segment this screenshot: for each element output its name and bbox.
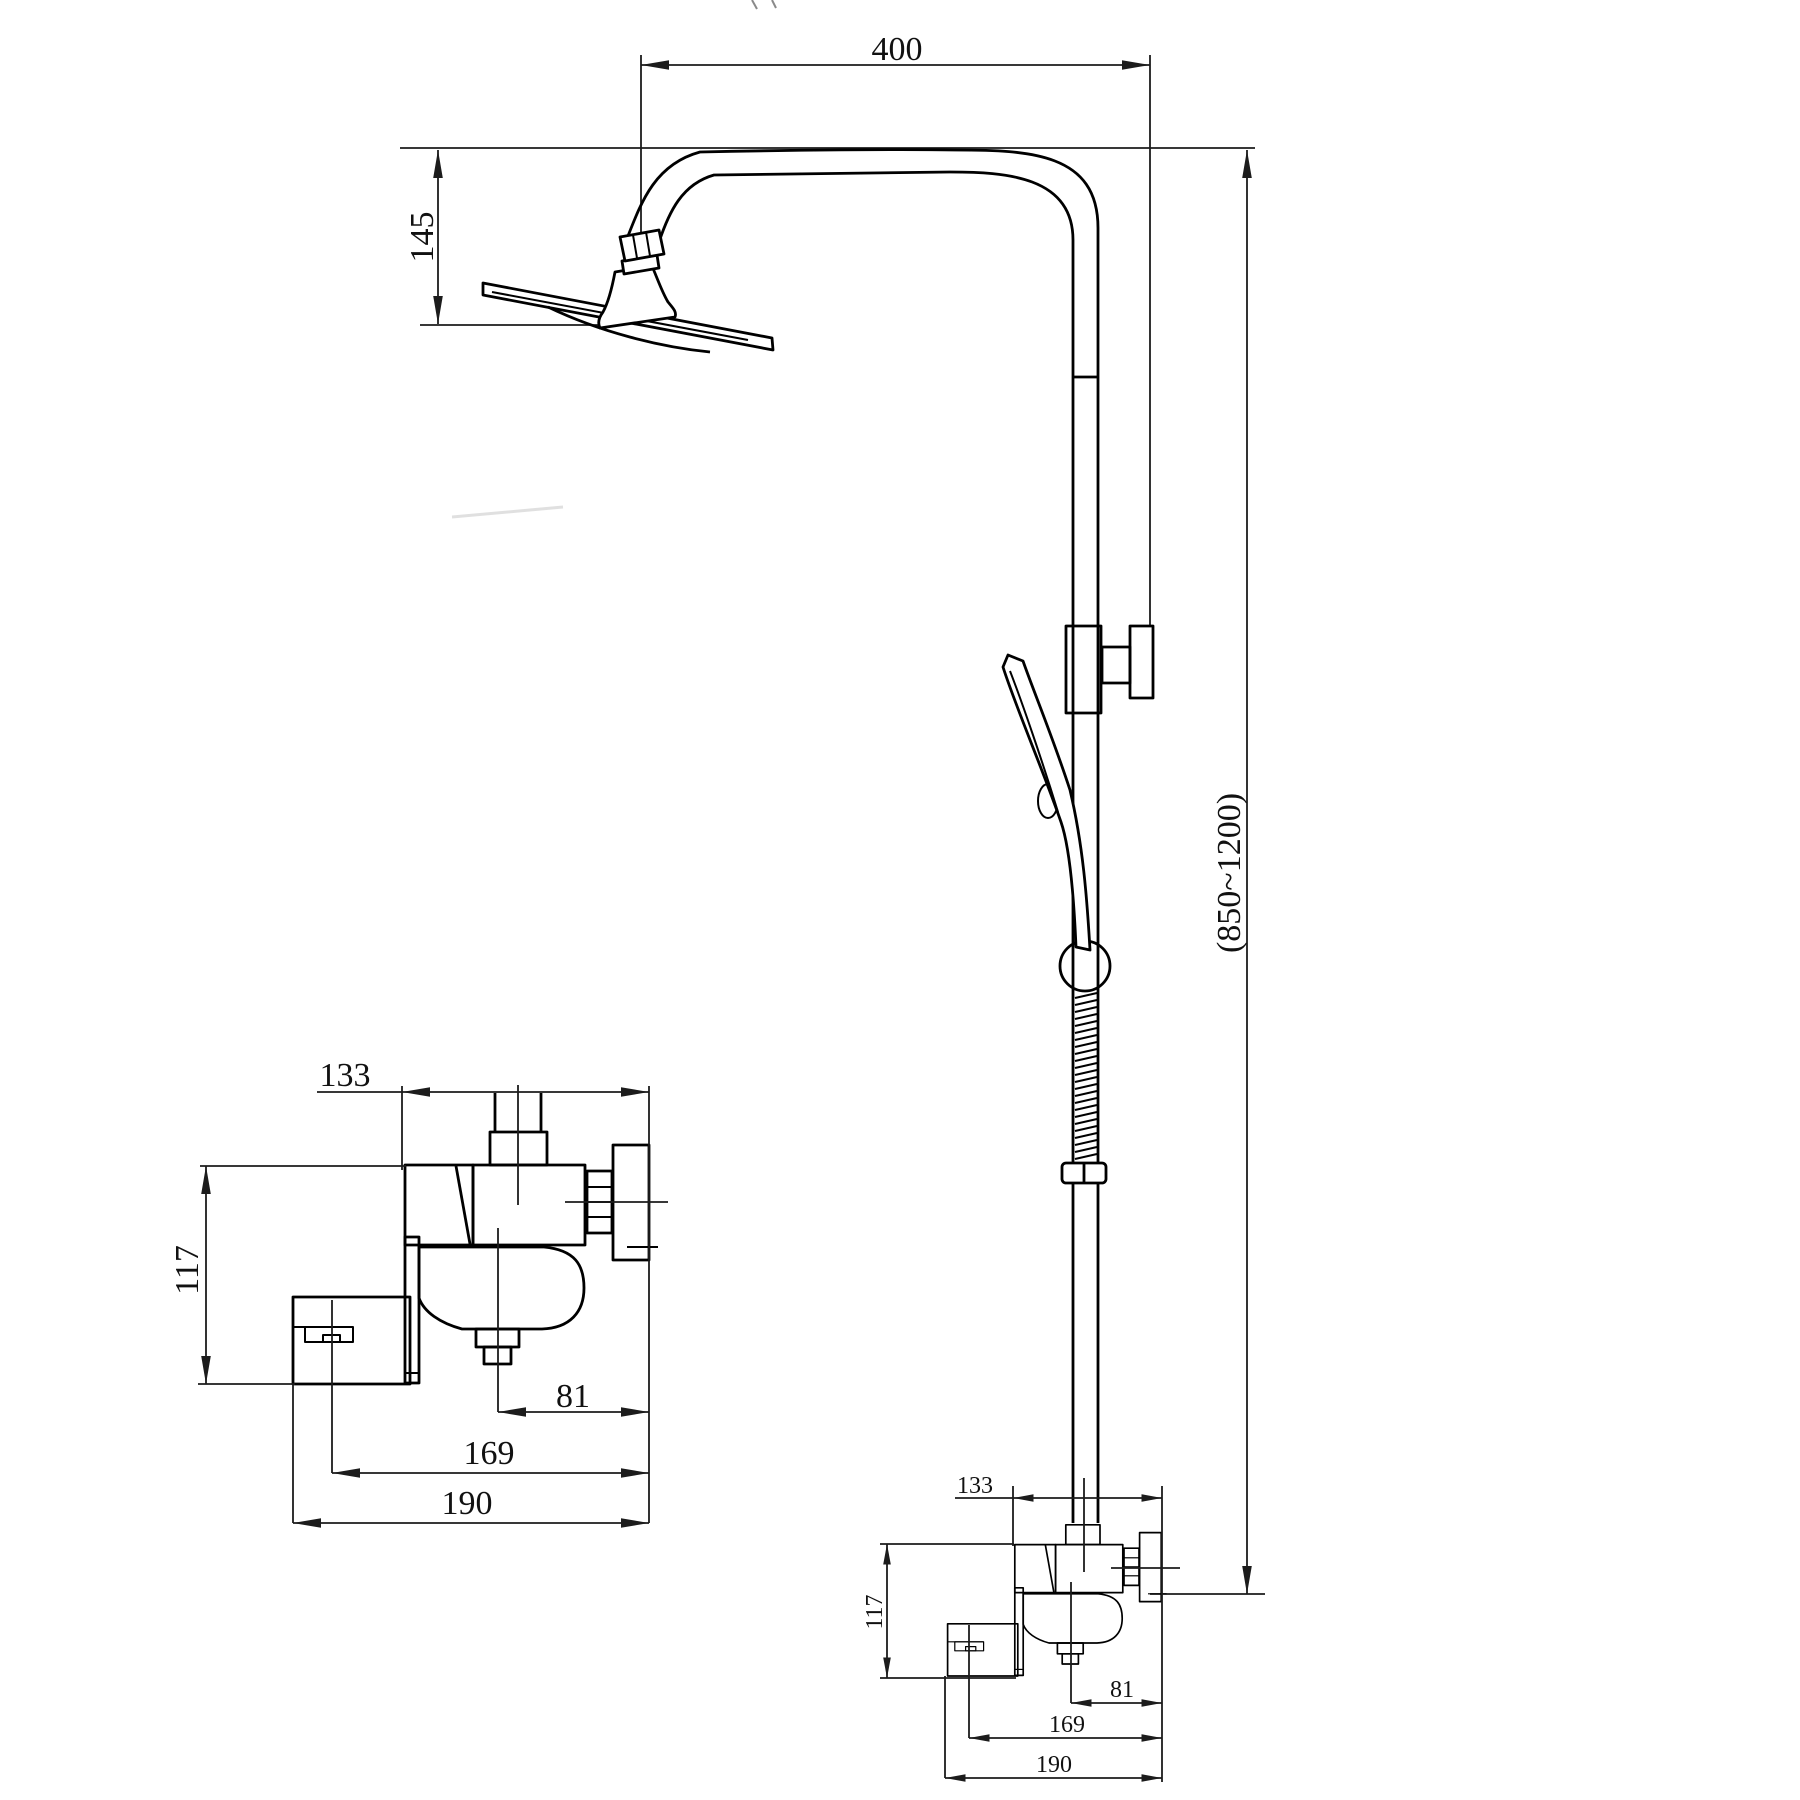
mixer-valve-detail-view <box>293 1132 658 1384</box>
main-view-dimensions: 133 117 81 169 190 <box>862 1473 1162 1782</box>
detail-view-dimensions: 133 117 81 169 190 <box>169 1057 649 1523</box>
extension-lines-column <box>400 55 1265 1594</box>
dim-145-label: 145 <box>404 212 441 263</box>
dim-133-main-label: 133 <box>957 1473 993 1499</box>
shower-system-technical-drawing: 400 145 (850~1200) 133 117 81 169 190 13… <box>0 0 1800 1800</box>
mixer-valve-main-view <box>948 1525 1167 1676</box>
dim-height-range-label: (850~1200) <box>1211 793 1248 953</box>
overhead-shower-head <box>483 230 773 352</box>
head-mount-cone <box>599 266 676 328</box>
dim-81-main-label: 81 <box>1110 1677 1134 1703</box>
hand-shower-wand <box>1003 655 1090 950</box>
dimension-arm-reach: 400 <box>641 31 1150 68</box>
dim-133-label: 133 <box>320 1057 371 1094</box>
ball-joint-nut <box>620 230 664 261</box>
dim-81-label: 81 <box>556 1378 590 1415</box>
dimension-column-height: (850~1200) <box>1211 150 1248 1594</box>
dim-117-label: 117 <box>169 1245 206 1295</box>
wall-bracket <box>1066 626 1153 713</box>
dim-117-main-label: 117 <box>862 1594 888 1629</box>
dim-169-main-label: 169 <box>1049 1712 1085 1738</box>
dim-169-label: 169 <box>464 1435 515 1472</box>
dimension-head-drop: 145 <box>404 150 441 324</box>
dim-190-main-label: 190 <box>1036 1752 1072 1778</box>
hose-ribs <box>1075 993 1097 1159</box>
dim-400-label: 400 <box>872 31 923 68</box>
centerlines <box>293 1085 1180 1778</box>
hand-shower <box>1003 655 1110 991</box>
drawing-canvas: 400 145 (850~1200) 133 117 81 169 190 13… <box>0 0 1800 1800</box>
scan-artifacts <box>452 0 776 517</box>
shower-arm <box>628 150 1098 242</box>
dim-190-label: 190 <box>442 1485 493 1522</box>
